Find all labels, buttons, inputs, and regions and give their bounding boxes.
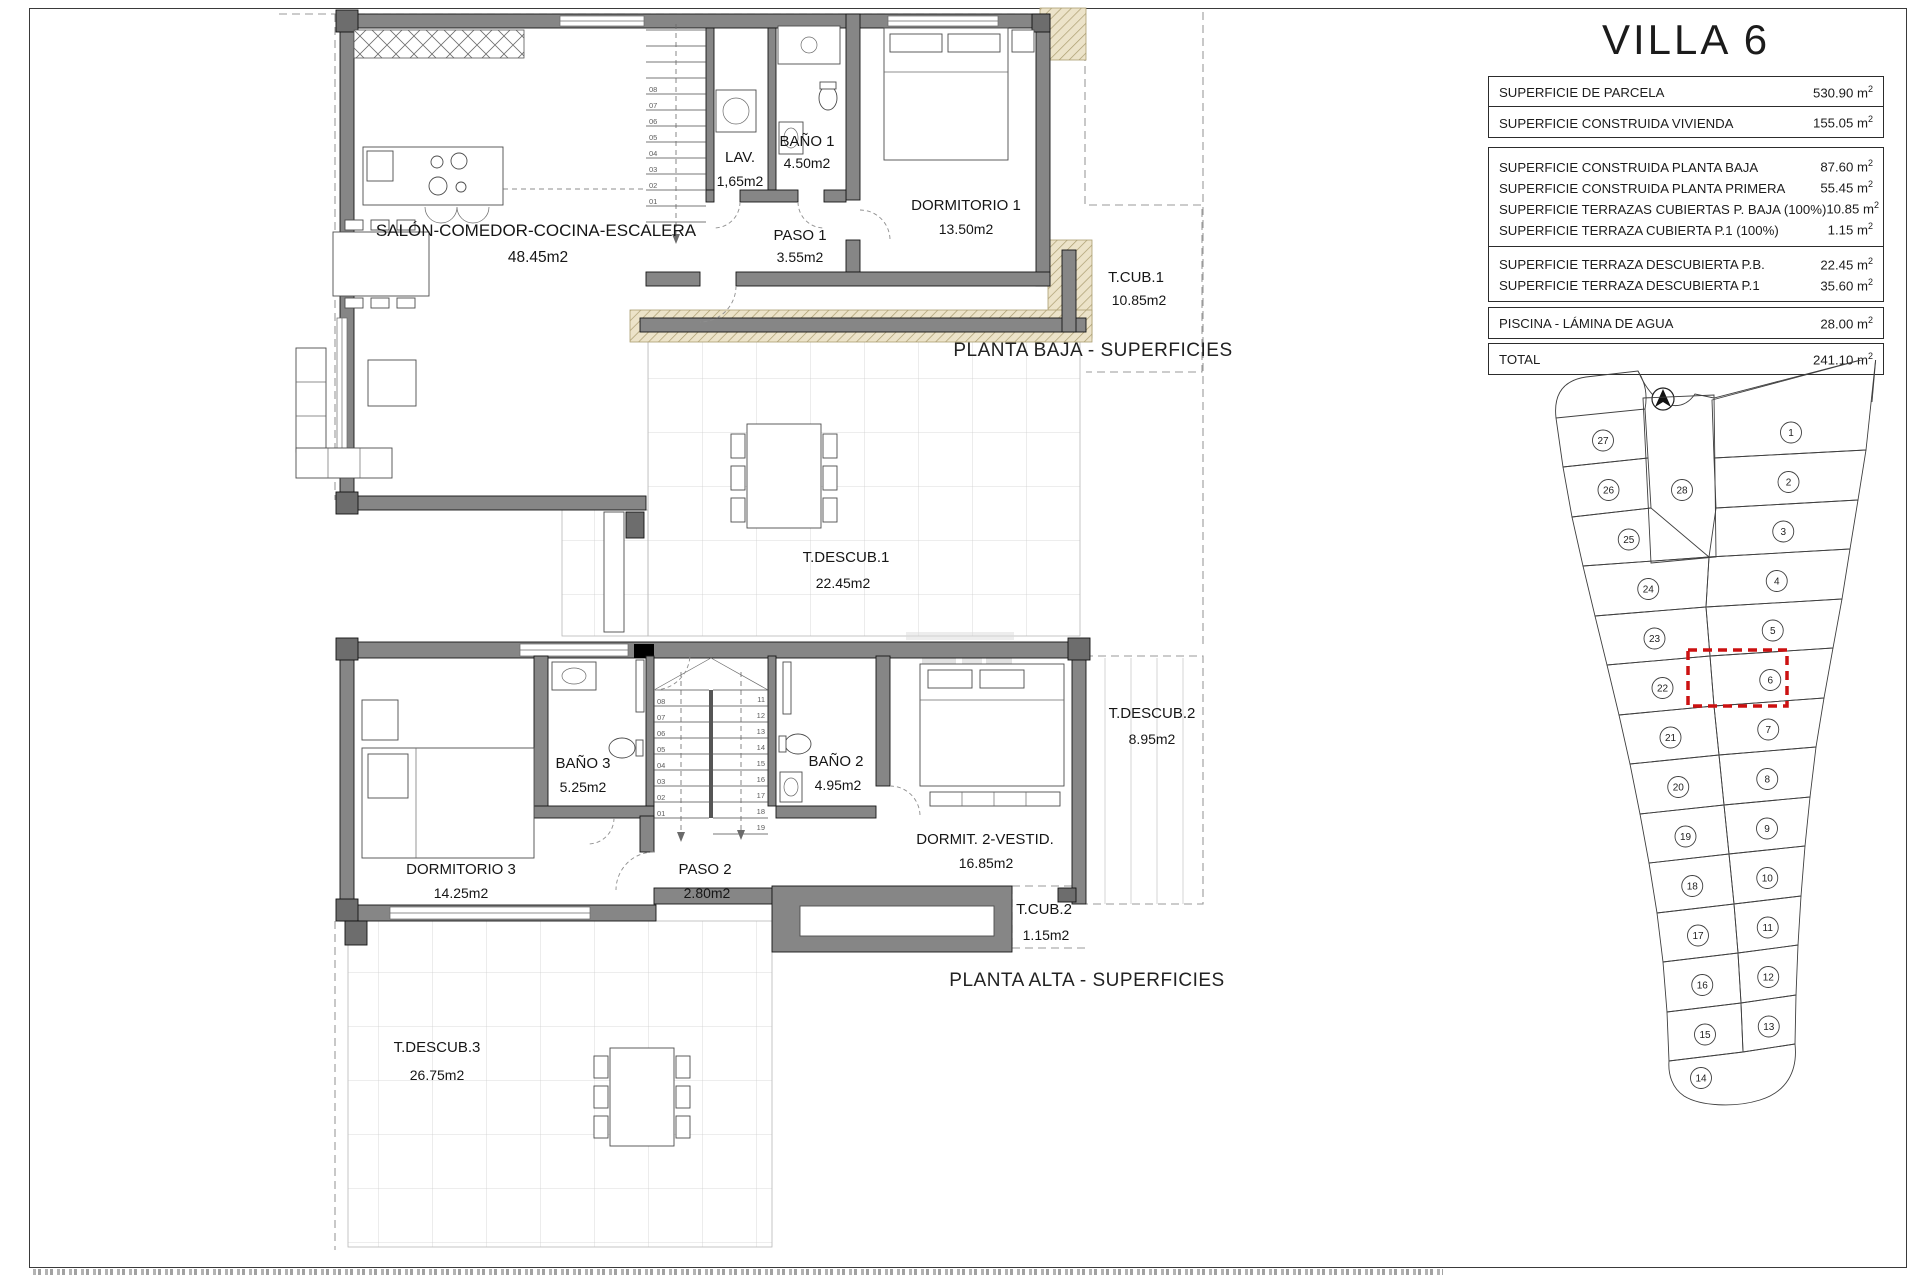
surface-table-group: PISCINA - LÁMINA DE AGUA28.00 m2 [1488,307,1884,339]
site-plot-number: 16 [1697,981,1709,992]
site-plot-number: 18 [1687,882,1699,893]
stair-step-number: 04 [649,149,657,158]
surface-table-group: SUPERFICIE CONSTRUIDA PLANTA BAJA87.60 m… [1488,147,1884,247]
site-plot-number: 19 [1680,832,1692,843]
pa-terrace-tdescub3 [348,921,772,1247]
room-label-tdescub1: T.DESCUB.1 [803,549,890,566]
room-label-tdescub2: T.DESCUB.2 [1109,705,1196,722]
surface-table-row: SUPERFICIE TERRAZA DESCUBIERTA P.135.60 … [1499,274,1873,295]
stair-step-number: 08 [657,697,665,706]
room-label-bano3: BAÑO 3 [555,755,610,772]
stair-step-number: 18 [757,807,765,816]
stair-step-number: 16 [757,775,765,784]
site-plot-number: 27 [1597,436,1609,447]
room-area-paso1: 3.55m2 [777,249,824,265]
site-plots: 2726252423222120191817161512345678910111… [1556,360,1876,1105]
surface-table-group: SUPERFICIE TERRAZA DESCUBIERTA P.B.22.45… [1488,246,1884,302]
stair-step-number: 05 [657,745,665,754]
room-area-bano2: 4.95m2 [815,777,862,793]
pa-stair-numbers-right: 111213141516171819 [757,695,765,832]
room-area-bano3: 5.25m2 [560,779,607,795]
stair-step-number: 06 [657,729,665,738]
stair-step-number: 14 [757,743,765,752]
site-plot-number: 26 [1603,486,1615,497]
stair-step-number: 01 [649,197,657,206]
pa-bed-dorm2 [920,664,1064,806]
stair-step-number: 11 [757,695,765,704]
site-plot-number: 20 [1673,783,1685,794]
surface-table-row: PISCINA - LÁMINA DE AGUA28.00 m2 [1499,312,1873,333]
site-plot-number: 11 [1763,923,1774,934]
room-label-dormitorio3: DORMITORIO 3 [406,861,516,878]
page-title: VILLA 6 [1488,16,1884,64]
surface-table: SUPERFICIE DE PARCELA530.90 m2SUPERFICIE… [1488,76,1884,375]
stair-step-number: 07 [657,713,665,722]
site-plot-number: 9 [1764,824,1770,835]
surface-table-row: SUPERFICIE CONSTRUIDA PLANTA PRIMERA55.4… [1499,176,1873,197]
stair-step-number: 13 [757,727,765,736]
room-label-bano1: BAÑO 1 [779,133,834,150]
stair-step-number: 06 [649,117,657,126]
site-plot-number: 2 [1786,478,1792,489]
site-plan: 2726252423222120191817161512345678910111… [1530,360,1920,1110]
surface-table-row: SUPERFICIE DE PARCELA530.90 m2 [1499,81,1873,102]
pa-bed-dorm3 [362,700,534,858]
room-area-dormitorio3: 14.25m2 [434,885,489,901]
stair-step-number: 08 [649,85,657,94]
site-plot-number: 25 [1623,535,1635,546]
gf-kitchen [354,30,646,223]
room-label-bano2: BAÑO 2 [808,753,863,770]
ground-floor-plan: 0102030405060708 [270,5,1260,660]
upper-floor-plan: 0102030405060708 111213141516171819 DORM… [270,628,1260,1278]
stair-step-number: 07 [649,101,657,110]
gf-bed-dorm1 [884,28,1034,160]
stair-step-number: 01 [657,809,665,818]
stair-step-number: 03 [649,165,657,174]
stair-step-number: 15 [757,759,765,768]
site-plot [1643,395,1716,563]
room-area-tdescub2: 8.95m2 [1129,731,1176,747]
room-area-tdescub1: 22.45m2 [816,575,871,591]
gf-sofa [296,348,416,478]
site-plot-number: 24 [1643,585,1655,596]
room-area-tdescub3: 26.75m2 [410,1067,465,1083]
room-label-tcub2: T.CUB.2 [1016,901,1072,918]
site-plot-number: 4 [1774,577,1780,588]
site-plot-number: 8 [1764,775,1770,786]
site-plot-number: 23 [1649,634,1661,645]
room-label-dormitorio1: DORMITORIO 1 [911,197,1021,214]
site-plot-number: 7 [1765,725,1771,736]
site-plot-number: 15 [1699,1030,1711,1041]
stair-step-number: 04 [657,761,665,770]
room-label-tdescub3: T.DESCUB.3 [394,1039,481,1056]
room-label-paso1: PASO 1 [773,227,826,244]
surface-table-row: SUPERFICIE TERRAZAS CUBIERTAS P. BAJA (1… [1499,197,1873,218]
stair-step-number: 05 [649,133,657,142]
site-plot-number: 12 [1763,973,1775,984]
pa-bath2-fixtures [779,662,811,802]
site-plot [1572,508,1709,566]
gf-staircase: 0102030405060708 [646,24,706,244]
stair-step-number: 02 [657,793,665,802]
room-area-tcub1: 10.85m2 [1112,292,1167,308]
room-label-tcub1: T.CUB.1 [1108,269,1164,286]
gf-lav-fixtures [716,90,756,132]
room-label-paso2: PASO 2 [678,861,731,878]
room-area-dormitorio2: 16.85m2 [959,855,1014,871]
room-area-tcub2: 1.15m2 [1023,927,1070,943]
site-plot-number: 28 [1676,486,1688,497]
site-plot-number: 6 [1767,676,1773,687]
room-area-paso2: 2.80m2 [684,885,731,901]
room-label-dormitorio2: DORMIT. 2-VESTID. [916,831,1054,848]
site-plot-number: 13 [1763,1022,1775,1033]
surface-table-row: SUPERFICIE TERRAZA DESCUBIERTA P.B.22.45… [1499,253,1873,274]
room-label-salon: SALÓN-COMEDOR-COCINA-ESCALERA [376,221,697,240]
surface-table-row: SUPERFICIE CONSTRUIDA PLANTA BAJA87.60 m… [1499,155,1873,176]
pa-stair-numbers-left: 0102030405060708 [657,697,665,818]
room-area-salon: 48.45m2 [508,249,568,266]
surface-table-group: SUPERFICIE CONSTRUIDA VIVIENDA155.05 m2 [1488,106,1884,138]
room-area-lav: 1,65m2 [717,173,764,189]
site-plot-number: 17 [1692,931,1704,942]
site-plot [1669,1044,1796,1105]
room-label-lav: LAV. [725,149,755,166]
site-plot-number: 3 [1780,527,1786,538]
stair-step-number: 03 [657,777,665,786]
ground-floor-caption: PLANTA BAJA - SUPERFICIES [953,340,1232,361]
stair-step-number: 19 [757,823,765,832]
upper-floor-caption: PLANTA ALTA - SUPERFICIES [949,970,1224,991]
stair-step-number: 02 [649,181,657,190]
room-area-bano1: 4.50m2 [784,155,831,171]
gf-stair-numbers: 0102030405060708 [649,85,657,206]
gf-tcub1-hatch [630,8,1092,342]
surface-table-row: SUPERFICIE CONSTRUIDA VIVIENDA155.05 m2 [1499,111,1873,132]
pa-terrace-tdescub2 [1085,658,1203,904]
site-plot-number: 22 [1657,684,1669,695]
site-plot-number: 10 [1762,874,1774,885]
surface-table-row: SUPERFICIE TERRAZA CUBIERTA P.1 (100%)1.… [1499,218,1873,239]
surface-table-group: SUPERFICIE DE PARCELA530.90 m2 [1488,76,1884,108]
site-plot-number: 21 [1665,733,1677,744]
site-plot-number: 1 [1788,428,1794,439]
site-plot-number: 5 [1770,626,1776,637]
room-area-dormitorio1: 13.50m2 [939,221,994,237]
stair-step-number: 17 [757,791,765,800]
pa-bath3-fixtures [552,660,644,758]
stair-step-number: 12 [757,711,765,720]
site-plot-number: 14 [1695,1074,1707,1085]
north-arrow-icon [1652,388,1674,410]
site-plot [1712,360,1876,458]
